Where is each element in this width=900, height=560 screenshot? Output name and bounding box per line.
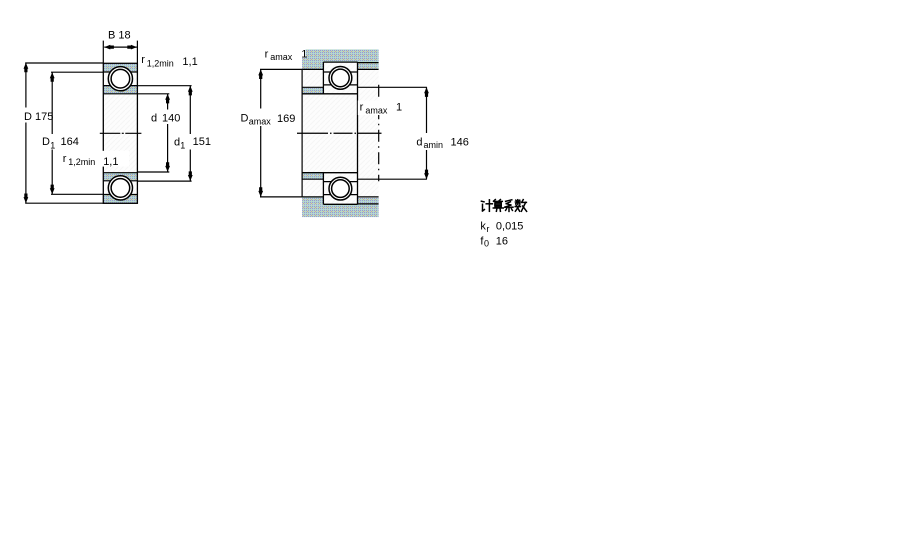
svg-text:1: 1 xyxy=(396,101,402,113)
svg-text:amax: amax xyxy=(249,117,272,127)
svg-text:1,1: 1,1 xyxy=(182,56,197,68)
svg-text:140: 140 xyxy=(162,112,180,124)
svg-text:D 175: D 175 xyxy=(24,111,53,123)
svg-text:1: 1 xyxy=(180,141,185,151)
svg-text:164: 164 xyxy=(61,136,79,148)
svg-text:1,2min: 1,2min xyxy=(147,59,174,69)
svg-text:0,015: 0,015 xyxy=(496,221,524,233)
svg-text:169: 169 xyxy=(277,113,295,125)
svg-text:amin: amin xyxy=(424,140,444,150)
svg-text:r: r xyxy=(141,54,145,66)
svg-text:16: 16 xyxy=(496,235,508,247)
svg-text:1,1: 1,1 xyxy=(103,156,118,168)
svg-text:1: 1 xyxy=(50,141,55,151)
svg-text:146: 146 xyxy=(451,137,469,149)
svg-text:amax: amax xyxy=(270,52,293,62)
svg-text:0: 0 xyxy=(484,239,489,249)
svg-text:r: r xyxy=(486,224,489,234)
svg-text:r: r xyxy=(63,153,67,165)
svg-text:1: 1 xyxy=(301,48,307,60)
svg-text:r: r xyxy=(265,48,269,60)
svg-text:amax: amax xyxy=(365,105,388,115)
svg-text:D: D xyxy=(241,113,249,125)
svg-text:d: d xyxy=(151,112,157,124)
svg-text:151: 151 xyxy=(193,136,211,148)
svg-text:r: r xyxy=(360,101,364,113)
svg-text:1,2min: 1,2min xyxy=(68,157,95,167)
svg-text:d: d xyxy=(416,137,422,149)
svg-text:B 18: B 18 xyxy=(108,29,131,41)
svg-text:D: D xyxy=(42,136,50,148)
